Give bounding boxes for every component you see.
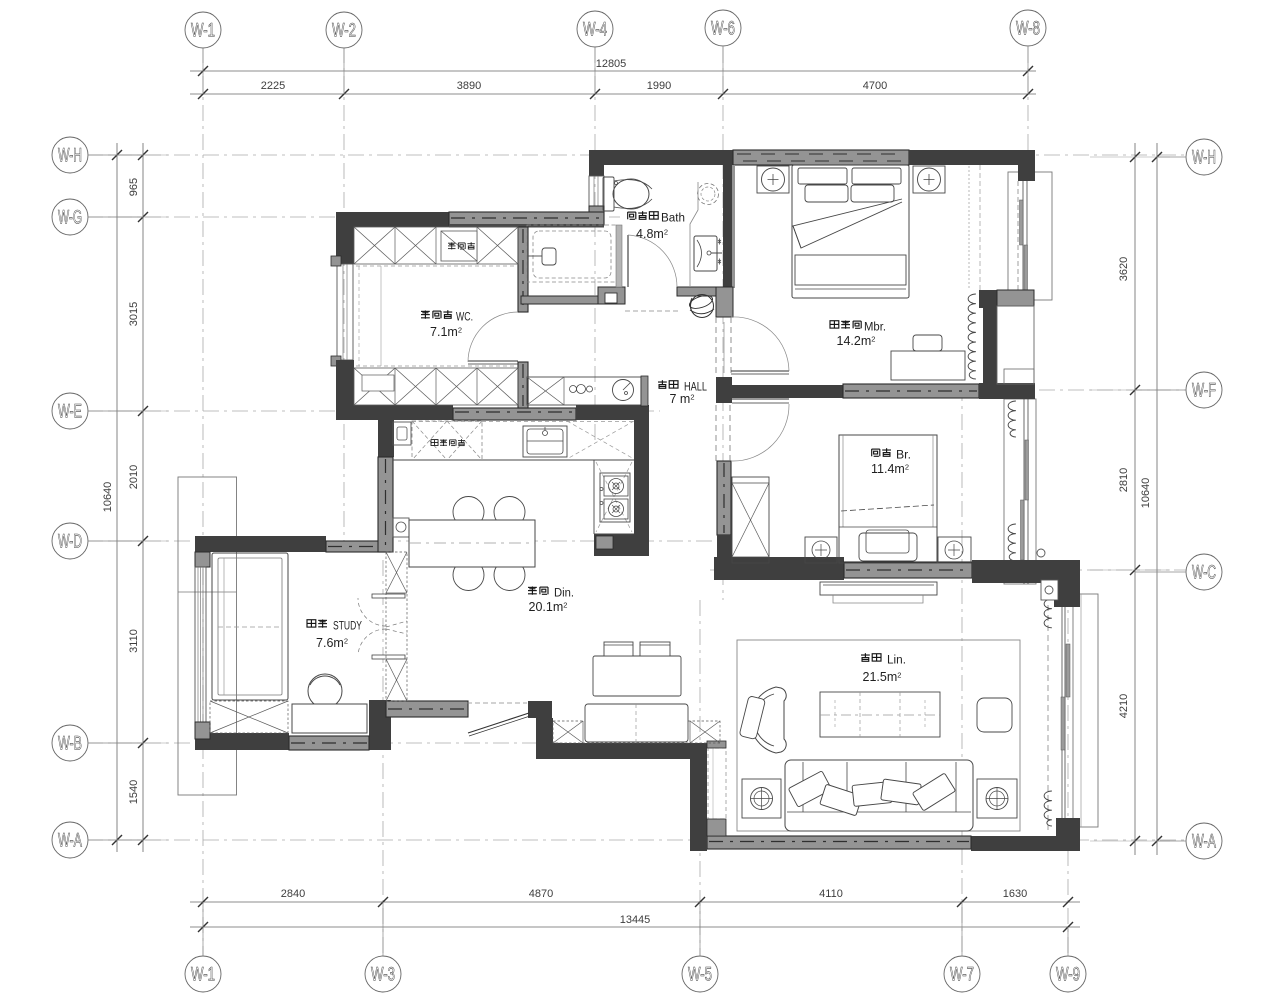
svg-text:W-H: W-H — [1192, 148, 1216, 169]
svg-text:7.1m2: 7.1m2 — [430, 325, 462, 339]
svg-text:2810: 2810 — [1118, 468, 1130, 492]
svg-text:W-3: W-3 — [371, 965, 395, 986]
svg-text:4700: 4700 — [863, 80, 887, 92]
svg-text:2225: 2225 — [261, 80, 285, 92]
svg-text:20.1m2: 20.1m2 — [529, 600, 568, 614]
svg-text:W-E: W-E — [58, 402, 82, 423]
svg-text:W-H: W-H — [58, 146, 82, 167]
svg-text:Br.: Br. — [896, 450, 911, 462]
svg-text:3620: 3620 — [1118, 257, 1130, 281]
svg-text:W-C: W-C — [1192, 563, 1216, 584]
svg-text:4.8m2: 4.8m2 — [636, 227, 668, 241]
svg-text:Lin.: Lin. — [887, 655, 906, 667]
svg-text:W-7: W-7 — [950, 965, 974, 986]
svg-text:W-B: W-B — [58, 734, 82, 755]
svg-text:W-2: W-2 — [332, 21, 356, 42]
svg-text:W-A: W-A — [1192, 832, 1216, 853]
svg-text:7.6m2: 7.6m2 — [316, 636, 348, 650]
svg-text:13445: 13445 — [620, 914, 651, 926]
svg-text:12805: 12805 — [596, 58, 627, 70]
svg-text:W-1: W-1 — [191, 965, 215, 986]
svg-text:3110: 3110 — [128, 629, 140, 653]
svg-text:W-D: W-D — [58, 532, 82, 553]
svg-text:Din.: Din. — [554, 588, 574, 600]
svg-text:W-G: W-G — [58, 208, 82, 229]
svg-text:965: 965 — [128, 178, 140, 196]
svg-text:W-F: W-F — [1192, 381, 1216, 402]
svg-text:4870: 4870 — [529, 888, 553, 900]
svg-text:W-1: W-1 — [191, 21, 215, 42]
svg-text:21.5m2: 21.5m2 — [863, 670, 902, 684]
svg-text:10640: 10640 — [1140, 478, 1152, 509]
svg-text:1630: 1630 — [1003, 888, 1027, 900]
svg-text:2840: 2840 — [281, 888, 305, 900]
svg-text:2010: 2010 — [128, 465, 140, 489]
svg-text:4210: 4210 — [1118, 694, 1130, 718]
svg-text:10640: 10640 — [102, 482, 114, 513]
svg-text:STUDY: STUDY — [333, 621, 362, 633]
svg-text:Mbr.: Mbr. — [864, 322, 886, 334]
svg-text:1990: 1990 — [647, 80, 671, 92]
svg-text:11.4m2: 11.4m2 — [871, 462, 909, 476]
svg-text:WC.: WC. — [456, 312, 473, 324]
svg-text:W-8: W-8 — [1016, 19, 1040, 40]
svg-text:W-9: W-9 — [1056, 965, 1080, 986]
svg-text:W-4: W-4 — [583, 20, 607, 41]
svg-text:Bath: Bath — [661, 213, 685, 225]
svg-text:W-A: W-A — [58, 831, 82, 852]
svg-text:W-6: W-6 — [711, 19, 735, 40]
svg-text:1540: 1540 — [128, 780, 140, 804]
svg-text:14.2m2: 14.2m2 — [837, 334, 876, 348]
svg-text:3015: 3015 — [128, 302, 140, 326]
svg-text:3890: 3890 — [457, 80, 481, 92]
svg-text:4110: 4110 — [819, 888, 843, 900]
svg-text:W-5: W-5 — [688, 965, 712, 986]
